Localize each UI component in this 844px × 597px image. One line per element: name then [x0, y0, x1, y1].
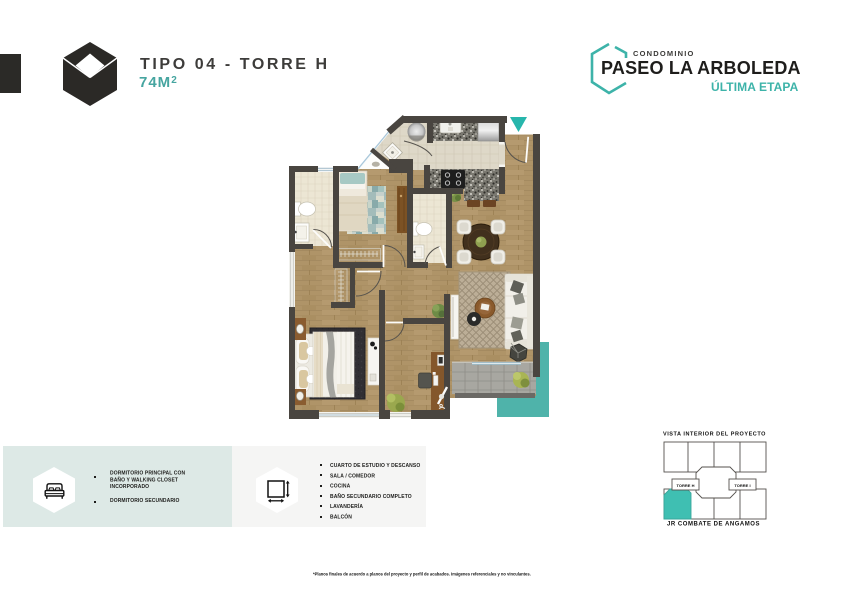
svg-text:TORRE H: TORRE H: [677, 483, 695, 488]
svg-text:TORRE I: TORRE I: [734, 483, 750, 488]
